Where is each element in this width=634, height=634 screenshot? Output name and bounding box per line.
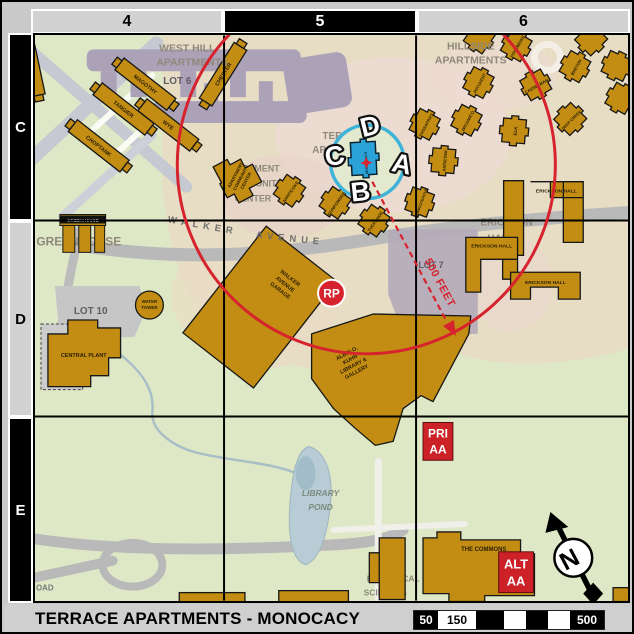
grid-column-header: 4 5 6 [31,9,630,34]
grid-row-header: C D E [8,33,33,603]
grid-row-c: C [8,33,33,221]
grid-column-6: 6 [417,9,630,34]
grid-column-4: 4 [31,9,223,34]
scale-seg-50: 50 [414,611,438,629]
svg-text:ALT: ALT [504,557,528,572]
scale-bar: 50 150 500 [413,610,605,630]
svg-text:AA: AA [429,442,447,456]
campus-map-canvas[interactable]: ERICKSON HALL GREENHOUSE APARTMENT COMMU… [35,35,628,601]
svg-text:ERICKSON HALL: ERICKSON HALL [536,189,577,195]
grid-column-5: 5 [223,9,417,34]
scale-seg-3 [476,611,504,629]
svg-text:WATER: WATER [142,299,158,304]
svg-text:TOWER: TOWER [141,305,158,310]
scale-seg-6 [548,611,570,629]
footer-bar: TERRACE APARTMENTS - MONOCACY 50 150 500 [4,604,634,634]
scale-seg-500: 500 [570,611,604,629]
scale-seg-4 [504,611,526,629]
marker-pri-aa: PRI AA [423,422,453,460]
svg-text:ELK: ELK [513,125,519,135]
scale-seg-150: 150 [438,611,476,629]
water-tower: WATER TOWER [135,291,163,319]
road-name-fragment: OAD [36,584,54,593]
marker-rp: RP [318,280,345,307]
library-pond-label-line1: LIBRARY [302,488,341,498]
map-viewport: ERICKSON HALL GREENHOUSE APARTMENT COMMU… [33,33,630,603]
scale-seg-5 [526,611,548,629]
map-frame: 4 5 6 C D E [0,0,634,634]
marker-alt-aa: ALT AA [499,552,534,593]
unit-letter-b: B [349,176,371,208]
svg-text:CENTRAL PLANT: CENTRAL PLANT [61,353,107,359]
grid-row-d: D [8,221,33,417]
building-elk: ELK [498,115,529,147]
library-pond-label-line2: POND [308,502,332,512]
svg-text:AA: AA [507,574,526,589]
map-title: TERRACE APARTMENTS - MONOCACY [35,609,360,629]
svg-text:RP: RP [323,287,340,301]
building-antietam: ANTIETAM [428,145,459,177]
svg-text:ERICKSON HALL: ERICKSON HALL [471,243,512,249]
building-monocacy-highlighted: MONOCACY [347,138,380,178]
grid-row-e: E [8,417,33,603]
hillside-label-line2: APARTMENTS [435,55,507,66]
west-hill-label-line1: WEST HILL [159,43,216,54]
svg-text:ERICKSON HALL: ERICKSON HALL [525,280,566,286]
lot6-label: LOT 6 [163,76,192,87]
svg-text:PRI: PRI [428,426,448,440]
hillside-label-line1: HILLSIDE [447,41,495,52]
lot10-label: LOT 10 [74,306,108,317]
west-hill-label-line2: APARTMENTS [156,57,228,68]
